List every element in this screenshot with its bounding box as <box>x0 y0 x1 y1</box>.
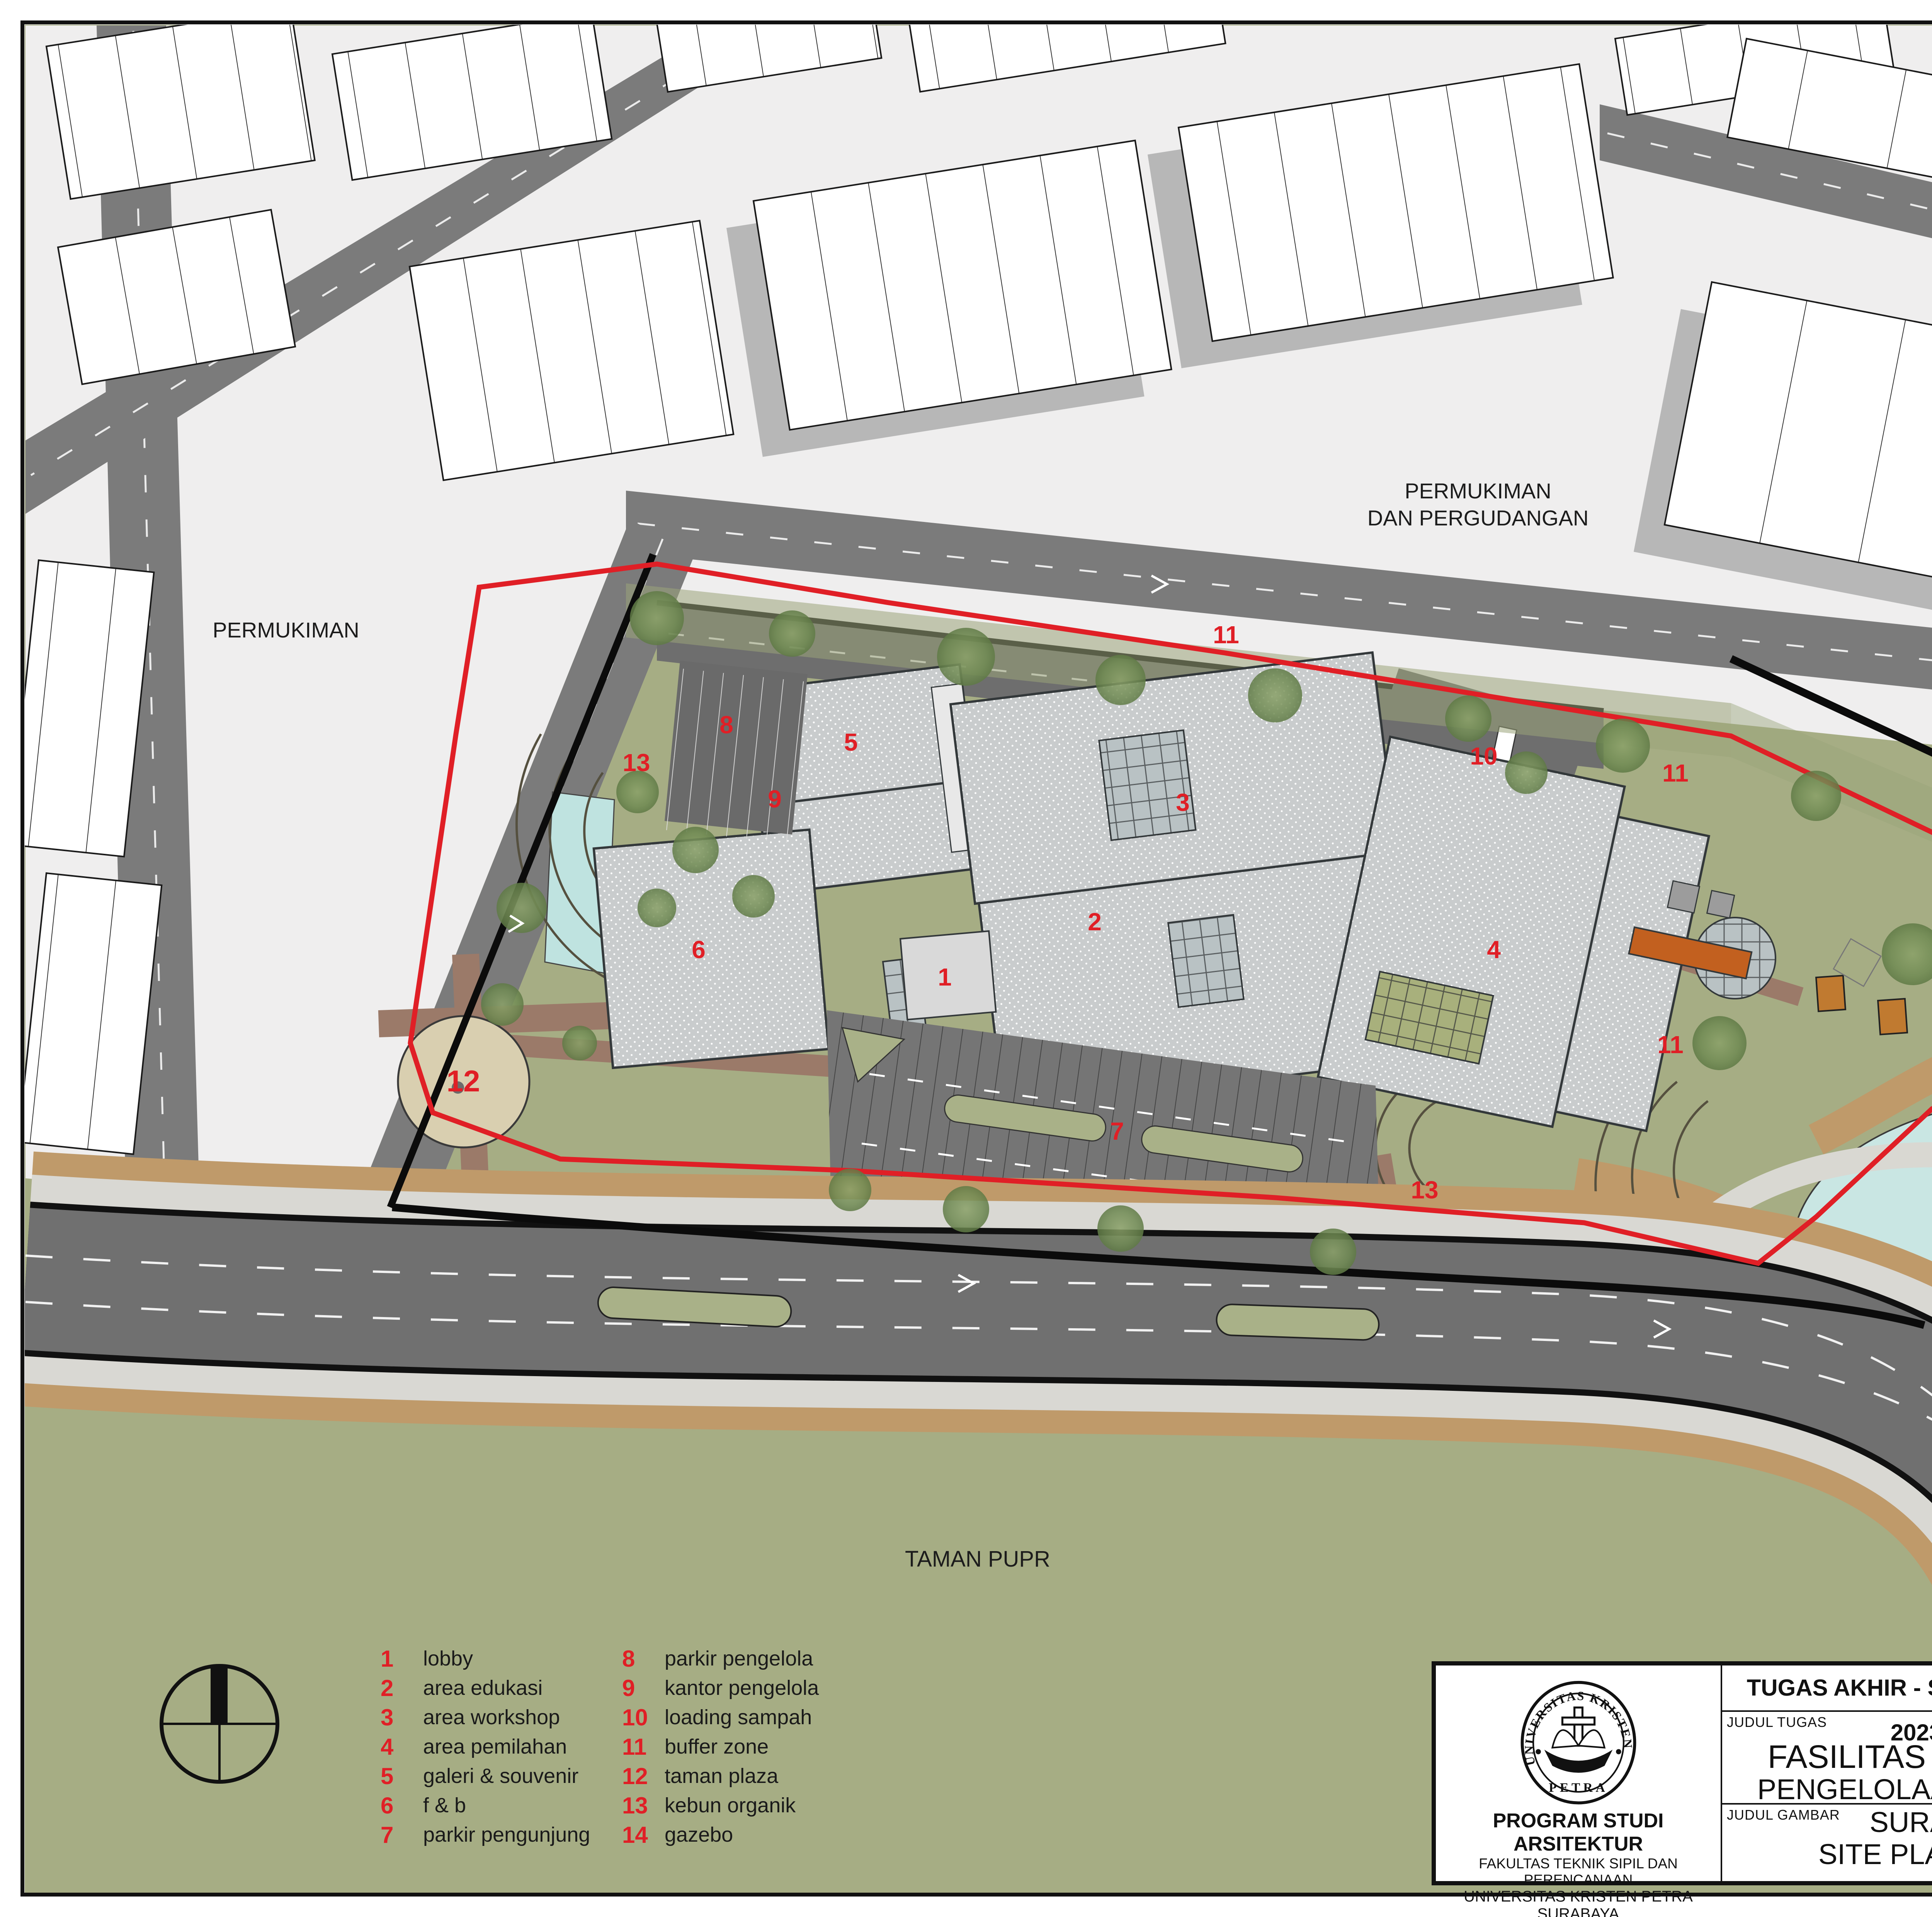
institution-line4: SURABAYA <box>1436 1905 1721 1917</box>
legend-label: area pemilahan <box>423 1735 567 1759</box>
legend-num: 9 <box>622 1675 665 1701</box>
plan-marker-4: 4 <box>1487 936 1501 964</box>
legend-column-2: 8parkir pengelola 9kantor pengelola 10lo… <box>622 1644 819 1849</box>
legend-item: 14gazebo <box>622 1820 819 1849</box>
label-pergudangan-1: PERMUKIMAN <box>1405 479 1551 503</box>
institution-line2: FAKULTAS TEKNIK SIPIL DAN PERENCANAAN <box>1436 1856 1721 1888</box>
legend-num: 4 <box>381 1733 423 1760</box>
plan-marker-10: 10 <box>1470 742 1497 770</box>
legend-label: galeri & souvenir <box>423 1764 578 1788</box>
plan-marker-12: 12 <box>447 1064 480 1098</box>
legend-label: buffer zone <box>665 1735 769 1759</box>
legend-label: parkir pengelola <box>665 1647 813 1671</box>
legend-item: 8parkir pengelola <box>622 1644 819 1673</box>
legend-column-1: 1lobby 2area edukasi 3area workshop 4are… <box>381 1644 590 1849</box>
judul-gambar-label: JUDUL GAMBAR <box>1727 1807 1840 1823</box>
legend-item: 12taman plaza <box>622 1761 819 1791</box>
legend-label: loading sampah <box>665 1705 812 1729</box>
legend-label: taman plaza <box>665 1764 778 1788</box>
legend-item: 7parkir pengunjung <box>381 1820 590 1849</box>
plan-marker-3: 3 <box>1176 789 1190 816</box>
legend-label: parkir pengunjung <box>423 1823 590 1847</box>
legend-num: 12 <box>622 1763 665 1790</box>
compass-icon <box>162 1666 277 1782</box>
legend-item: 3area workshop <box>381 1703 590 1732</box>
judul-tugas-cell: JUDUL TUGAS FASILITAS EDUWISATA PENGELOL… <box>1721 1710 1932 1805</box>
legend-num: 2 <box>381 1675 423 1701</box>
title-block: UNIVERSITAS KRISTEN PETRA PROGRAM STUDI … <box>1432 1661 1932 1885</box>
plan-marker-8: 8 <box>719 711 733 739</box>
legend-num: 10 <box>622 1704 665 1731</box>
drawing-title: SITE PLAN <box>1722 1838 1932 1871</box>
legend-num: 7 <box>381 1822 423 1848</box>
map-content: PERMUKIMAN PERMUKIMAN DAN PERGUDANGAN KO… <box>9 0 1932 1894</box>
legend-num: 6 <box>381 1792 423 1819</box>
legend-label: f & b <box>423 1793 466 1817</box>
legend-num: 13 <box>622 1792 665 1819</box>
legend-item: 6f & b <box>381 1791 590 1820</box>
plan-marker-5: 5 <box>844 728 858 756</box>
legend-label: gazebo <box>665 1823 733 1847</box>
title-block-logo-cell: UNIVERSITAS KRISTEN PETRA PROGRAM STUDI … <box>1434 1664 1722 1883</box>
legend-item: 13kebun organik <box>622 1791 819 1820</box>
petra-logo-icon: UNIVERSITAS KRISTEN PETRA <box>1478 1679 1679 1809</box>
legend-label: lobby <box>423 1647 473 1671</box>
legend-label: area workshop <box>423 1705 560 1729</box>
site-plan-sheet: PERMUKIMAN PERMUKIMAN DAN PERGUDANGAN KO… <box>0 0 1932 1917</box>
legend-item: 5galeri & souvenir <box>381 1761 590 1791</box>
legend-label: kebun organik <box>665 1793 796 1817</box>
legend: 1lobby 2area edukasi 3area workshop 4are… <box>381 1644 825 1852</box>
site-plan-drawing: PERMUKIMAN PERMUKIMAN DAN PERGUDANGAN KO… <box>0 0 1932 1917</box>
plan-marker-7: 7 <box>1110 1117 1124 1145</box>
plan-marker-11-top: 11 <box>1213 621 1239 649</box>
legend-item: 2area edukasi <box>381 1673 590 1703</box>
legend-num: 14 <box>622 1822 665 1848</box>
institution-line1: PROGRAM STUDI ARSITEKTUR <box>1436 1809 1721 1856</box>
plan-marker-9: 9 <box>768 785 782 813</box>
legend-item: 11buffer zone <box>622 1732 819 1761</box>
plan-marker-1: 1 <box>938 963 952 991</box>
plan-marker-11-e: 11 <box>1657 1031 1684 1059</box>
institution-block: PROGRAM STUDI ARSITEKTUR FAKULTAS TEKNIK… <box>1436 1809 1721 1917</box>
title-block-header-cell: TUGAS AKHIR - SEMESTER GENAP 2023/2024 <box>1721 1664 1932 1712</box>
legend-item: 4area pemilahan <box>381 1732 590 1761</box>
legend-item: 9kantor pengelola <box>622 1673 819 1703</box>
legend-num: 11 <box>622 1733 665 1760</box>
north-arrow <box>211 1666 228 1724</box>
plan-marker-11-ne: 11 <box>1662 759 1689 787</box>
legend-num: 1 <box>381 1645 423 1672</box>
project-title-line1: FASILITAS EDUWISATA <box>1722 1738 1932 1776</box>
parking-pengelola <box>663 661 808 843</box>
legend-label: area edukasi <box>423 1676 543 1700</box>
legend-item: 1lobby <box>381 1644 590 1673</box>
legend-num: 8 <box>622 1645 665 1672</box>
plan-marker-6: 6 <box>692 936 706 964</box>
plan-marker-2: 2 <box>1088 908 1102 936</box>
judul-gambar-cell: JUDUL GAMBAR SITE PLAN <box>1721 1803 1932 1883</box>
logo-bottom-text: PETRA <box>1549 1781 1608 1795</box>
judul-tugas-label: JUDUL TUGAS <box>1727 1714 1827 1730</box>
legend-label: kantor pengelola <box>665 1676 819 1700</box>
plan-marker-13-s: 13 <box>1411 1176 1438 1204</box>
legend-item: 10loading sampah <box>622 1703 819 1732</box>
label-taman-pupr: TAMAN PUPR <box>905 1547 1050 1572</box>
label-pergudangan-2: DAN PERGUDANGAN <box>1367 506 1589 530</box>
legend-num: 3 <box>381 1704 423 1731</box>
label-permukiman: PERMUKIMAN <box>213 618 359 642</box>
legend-num: 5 <box>381 1763 423 1790</box>
institution-line3: UNIVERSITAS KRISTEN PETRA <box>1436 1888 1721 1905</box>
plan-marker-13: 13 <box>622 749 650 777</box>
